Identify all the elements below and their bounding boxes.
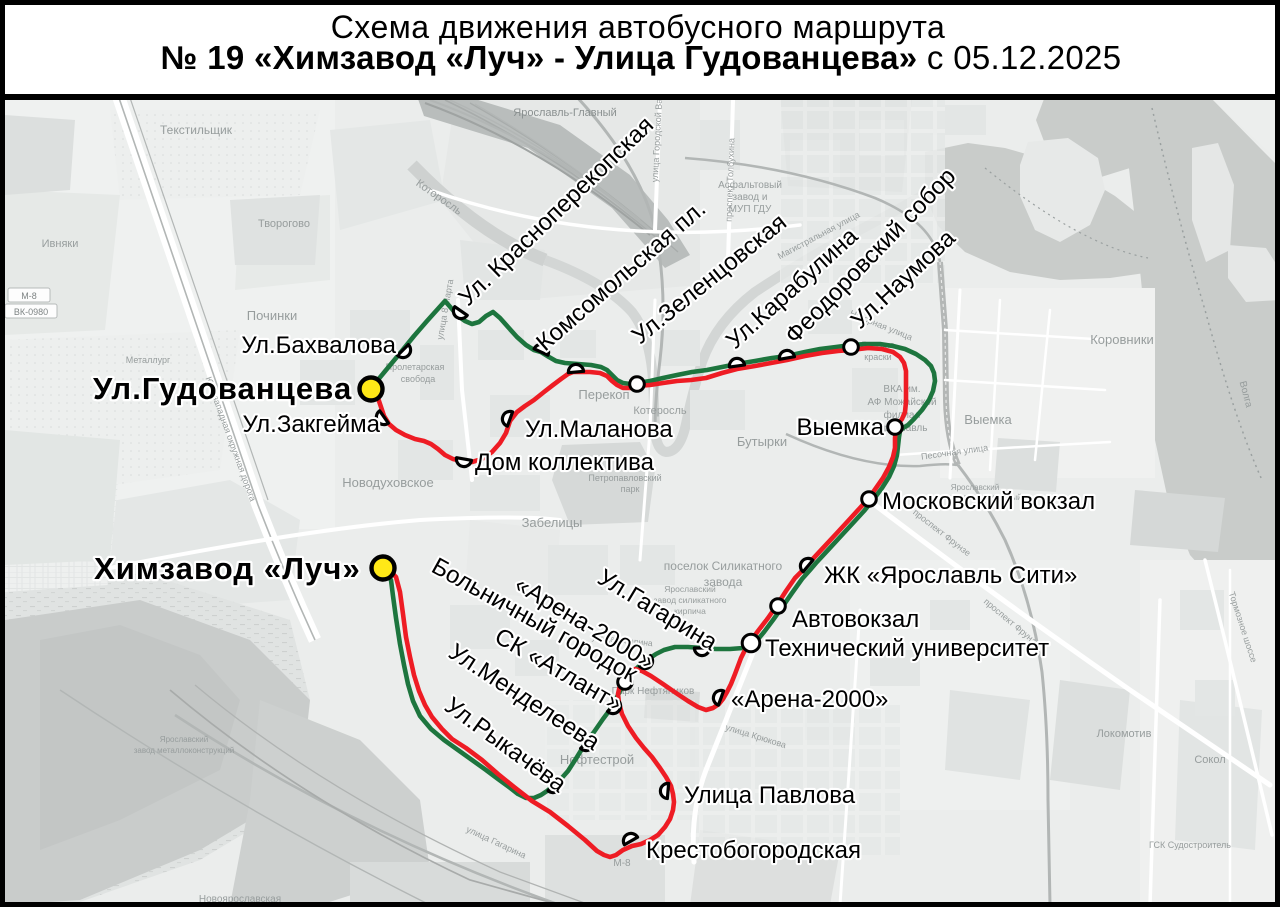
- svg-text:МУП ГДУ: МУП ГДУ: [729, 204, 772, 215]
- svg-text:Текстильщик: Текстильщик: [160, 123, 233, 137]
- svg-text:М-8: М-8: [613, 858, 631, 869]
- svg-text:свобода: свобода: [401, 374, 435, 384]
- svg-text:Ярославский: Ярославский: [160, 735, 208, 744]
- svg-text:Выемка: Выемка: [964, 412, 1012, 427]
- svg-text:ГСК Судостроитель: ГСК Судостроитель: [1149, 840, 1231, 850]
- svg-text:М-8: М-8: [21, 291, 37, 301]
- svg-text:завод металлоконструкций: завод металлоконструкций: [134, 746, 235, 755]
- svg-text:Автовокзал: Автовокзал: [792, 606, 919, 633]
- svg-text:Ивняки: Ивняки: [42, 238, 79, 250]
- svg-text:Новодуховское: Новодуховское: [342, 475, 434, 490]
- svg-text:Ул.Маланова: Ул.Маланова: [525, 416, 673, 443]
- svg-text:Ул.Закгейма: Ул.Закгейма: [243, 411, 381, 438]
- svg-text:Дом коллектива: Дом коллектива: [475, 449, 655, 476]
- svg-text:Асфальтовый: Асфальтовый: [718, 179, 782, 191]
- svg-text:Ул.Бахвалова: Ул.Бахвалова: [241, 332, 396, 359]
- svg-text:«Арена-2000»: «Арена-2000»: [731, 686, 888, 713]
- svg-text:ВК-0980: ВК-0980: [14, 307, 48, 317]
- svg-text:Ул.Гудованцева: Ул.Гудованцева: [93, 371, 352, 406]
- svg-text:поселок Силикатного: поселок Силикатного: [664, 559, 783, 573]
- svg-text:завод и: завод и: [733, 192, 768, 203]
- svg-text:парк: парк: [621, 484, 640, 494]
- svg-text:Починки: Починки: [247, 308, 297, 323]
- svg-text:Крестобогородская: Крестобогородская: [646, 837, 861, 864]
- svg-text:Бутырки: Бутырки: [737, 434, 787, 449]
- svg-text:Химзавод «Луч»: Химзавод «Луч»: [94, 551, 361, 586]
- svg-text:Улица Павлова: Улица Павлова: [684, 782, 856, 809]
- svg-text:Сокол: Сокол: [1194, 754, 1225, 766]
- svg-text:Ярославль-Главный: Ярославль-Главный: [513, 107, 616, 119]
- svg-text:Локомотив: Локомотив: [1097, 728, 1152, 740]
- svg-text:Выемка: Выемка: [797, 414, 885, 441]
- svg-text:ВКА им.: ВКА им.: [883, 384, 920, 395]
- svg-text:ЖК «Ярославль Сити»: ЖК «Ярославль Сити»: [824, 562, 1077, 589]
- svg-text:Московский вокзал: Московский вокзал: [882, 488, 1095, 515]
- svg-text:Металлург: Металлург: [126, 355, 171, 365]
- svg-text:краски: краски: [864, 352, 891, 362]
- svg-text:Творогово: Творогово: [258, 218, 310, 230]
- svg-text:Забелицы: Забелицы: [522, 515, 583, 530]
- svg-text:Ярославский: Ярославский: [664, 584, 716, 594]
- svg-text:Коровники: Коровники: [1090, 332, 1154, 347]
- svg-text:№ 19 «Химзавод «Луч» - Улица Г: № 19 «Химзавод «Луч» - Улица Гудованцева…: [161, 39, 1122, 76]
- svg-text:Технический университет: Технический университет: [765, 635, 1049, 662]
